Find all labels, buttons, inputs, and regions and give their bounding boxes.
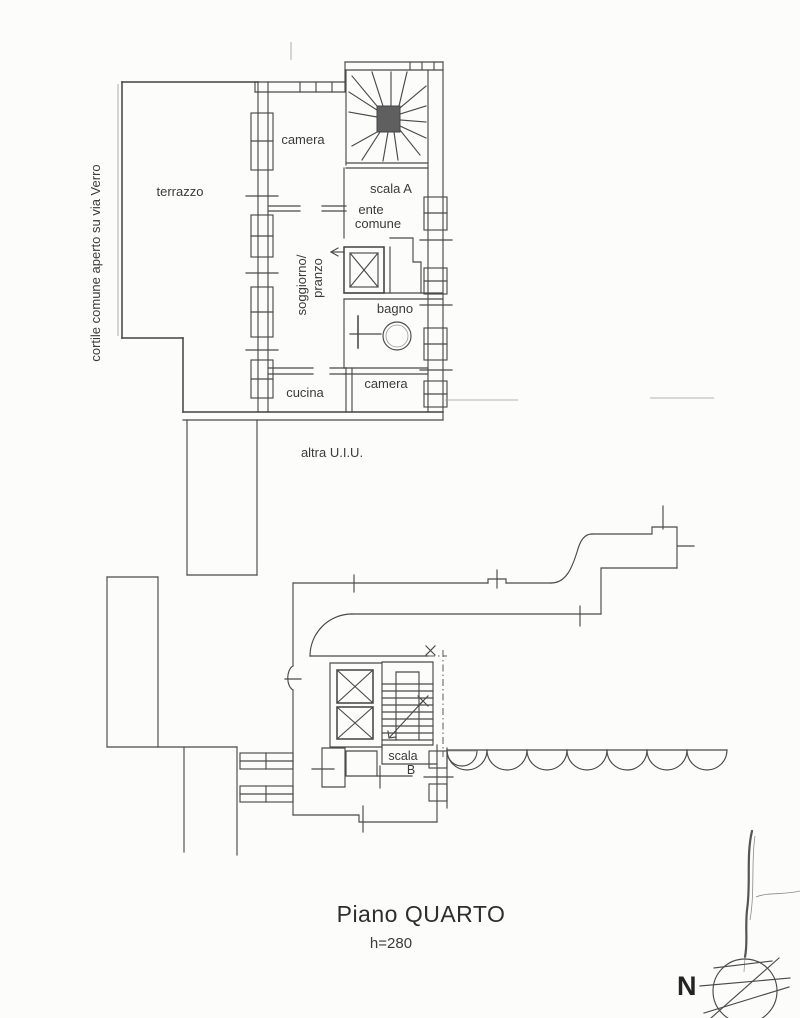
door-swing-icon bbox=[447, 751, 477, 766]
label-soggiorno: soggiorno/ bbox=[294, 254, 309, 315]
north-needle-icon bbox=[744, 831, 800, 972]
label-courtyard: cortile comune aperto su via Verro bbox=[88, 164, 103, 361]
south-wall bbox=[183, 412, 443, 420]
label-scala-b-line2: B bbox=[407, 763, 415, 777]
ceiling-height-note: h=280 bbox=[370, 935, 412, 952]
lower-unit-outline bbox=[240, 506, 694, 832]
north-wall bbox=[255, 62, 443, 92]
label-scala-a: scala A bbox=[370, 181, 412, 196]
compass-icon bbox=[700, 958, 790, 1018]
label-altra-uiu: altra U.I.U. bbox=[301, 445, 363, 460]
caption: Piano QUARTO h=280 bbox=[337, 901, 506, 952]
elevator-b2-icon bbox=[337, 707, 373, 739]
floor-title: Piano QUARTO bbox=[337, 901, 506, 927]
core-walls bbox=[312, 646, 443, 788]
floor-plan-drawing: terrazzo camera scala A ente comune sogg… bbox=[0, 0, 800, 1018]
label-camera-bottom: camera bbox=[364, 376, 408, 391]
east-wall-windows bbox=[420, 62, 452, 412]
label-camera-top: camera bbox=[281, 132, 325, 147]
label-terrazzo: terrazzo bbox=[157, 184, 204, 199]
label-comune: comune bbox=[355, 216, 401, 231]
left-annex-block bbox=[107, 577, 237, 855]
label-bagno: bagno bbox=[377, 301, 413, 316]
balcony-scallops bbox=[447, 750, 727, 770]
west-wall-windows bbox=[246, 82, 278, 412]
room-dividers bbox=[268, 206, 352, 412]
terrace-outline bbox=[118, 82, 258, 412]
label-cucina: cucina bbox=[286, 385, 324, 400]
label-scala-b-line1: scala bbox=[388, 749, 417, 763]
north-label: N bbox=[677, 971, 697, 1001]
label-ente: ente bbox=[358, 202, 383, 217]
staircase-a-icon bbox=[346, 70, 428, 168]
scanned-floorplan-page: terrazzo camera scala A ente comune sogg… bbox=[0, 0, 800, 1018]
lower-floor-plan: scala B bbox=[107, 420, 727, 855]
label-pranzo: pranzo bbox=[310, 258, 325, 298]
elevator-b1-icon bbox=[337, 670, 373, 703]
connector-walls bbox=[187, 420, 257, 575]
compass-rose: N bbox=[677, 831, 800, 1018]
elevator-a-icon bbox=[344, 247, 384, 293]
upper-floor-plan: terrazzo camera scala A ente comune sogg… bbox=[88, 42, 714, 460]
sink-icon bbox=[383, 322, 411, 350]
staircase-b-icon bbox=[382, 672, 433, 740]
